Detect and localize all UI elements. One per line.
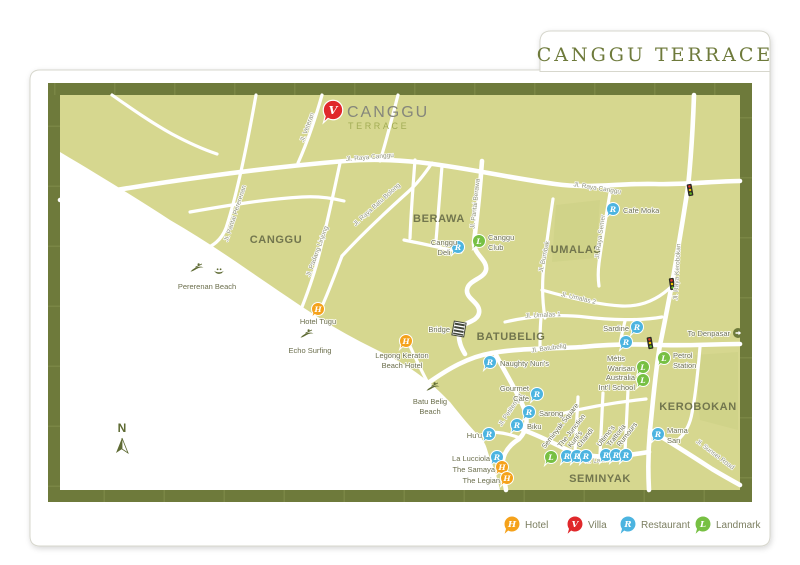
compass-north-label: N	[118, 421, 127, 435]
poi-label-sardine: Sardine	[603, 324, 629, 333]
poi-label-la-lucciola: La Lucciola	[452, 454, 491, 463]
bridge-icon	[452, 321, 466, 337]
poi-label-huu: Hu'u	[467, 431, 482, 440]
legend-label-restaurant: Restaurant	[641, 520, 690, 531]
svg-text:L: L	[547, 453, 553, 462]
poi-label-mama-san-2: San	[667, 436, 680, 445]
svg-text:H: H	[507, 520, 517, 530]
svg-text:H: H	[502, 474, 511, 483]
beach-label-batu-belig-1: Batu Belig	[413, 397, 447, 406]
poi-label-legong-keraton-1: Legong Keraton	[375, 351, 428, 360]
poi-label-australia-school-2: Int'l School	[599, 383, 636, 392]
poi-label-warisan: Warisan	[608, 364, 635, 373]
svg-text:L: L	[639, 363, 645, 372]
svg-text:R: R	[612, 451, 619, 460]
area-label-canggu: CANGGU	[250, 234, 303, 246]
page-title: CANGGU TERRACE	[537, 44, 774, 66]
svg-text:L: L	[660, 354, 666, 363]
bridge-label: Bridge	[428, 325, 450, 334]
poi-label-canggu-deli-2: Deli	[438, 248, 451, 257]
to-denpasar-label: To Denpasar	[687, 329, 730, 338]
area-label-kerobokan: KEROBOKAN	[659, 401, 737, 413]
poi-label-canggu-club-2: Club	[488, 243, 503, 252]
beach-label-echo-surfing: Echo Surfing	[289, 346, 332, 355]
beach-label-batu-belig-2: Beach	[419, 407, 440, 416]
svg-text:V: V	[329, 103, 339, 117]
legend-label-landmark: Landmark	[716, 520, 761, 531]
svg-text:R: R	[563, 452, 570, 461]
svg-text:R: R	[485, 430, 492, 439]
svg-text:R: R	[633, 323, 640, 332]
poi-label-canggu-club-1: Canggu	[488, 233, 514, 242]
svg-text:L: L	[699, 520, 706, 530]
poi-label-canggu-deli-1: Canggu	[431, 238, 457, 247]
poi-label-cafe-moka: Cafe Moka	[623, 206, 660, 215]
svg-text:R: R	[533, 390, 540, 399]
to-denpasar-arrow-icon	[733, 328, 743, 338]
poi-label-hotel-tugu: Hotel Tugu	[300, 317, 336, 326]
area-label-berawa: BERAWA	[413, 213, 465, 225]
svg-text:H: H	[401, 337, 410, 346]
svg-text:R: R	[525, 408, 532, 417]
poi-label-australia-school-1: Australia	[606, 373, 636, 382]
svg-text:R: R	[486, 358, 493, 367]
poi-label-sarong: Sarong	[539, 409, 563, 418]
poi-label-gourmet-cafe-2: Cafe	[513, 394, 529, 403]
area-label-batubelig: BATUBELIG	[477, 331, 546, 343]
poi-label-gourmet-cafe-1: Gourmet	[500, 384, 530, 393]
poi-label-petrol-station-2: Station	[673, 361, 696, 370]
svg-text:L: L	[639, 376, 645, 385]
svg-text:R: R	[623, 520, 631, 530]
canggu-terrace-map-page: CANGGU TERRACE	[0, 0, 800, 565]
svg-text:H: H	[313, 305, 322, 314]
area-label-seminyak: SEMINYAK	[569, 473, 631, 485]
poi-label-biku: Biku	[527, 422, 542, 431]
villa-title-line2: TERRACE	[348, 121, 409, 131]
poi-label-petrol-station-1: Petrol	[673, 351, 693, 360]
beach-label-pererenan: Pererenan Beach	[178, 282, 236, 291]
svg-text:R: R	[493, 453, 500, 462]
svg-text:R: R	[654, 430, 661, 439]
poi-label-the-legian: The Legian	[462, 476, 500, 485]
poi-label-the-samaya: The Samaya	[452, 465, 495, 474]
legend-label-villa: Villa	[588, 520, 607, 531]
villa-title-line1: CANGGU	[347, 104, 429, 121]
svg-text:R: R	[622, 451, 629, 460]
svg-text:R: R	[609, 205, 616, 214]
svg-text:R: R	[602, 451, 609, 460]
poi-label-legong-keraton-2: Beach Hotel	[382, 361, 423, 370]
legend-label-hotel: Hotel	[525, 520, 548, 531]
svg-text:H: H	[497, 463, 506, 472]
svg-text:L: L	[475, 237, 481, 246]
poi-label-mama-san-1: Mama	[667, 426, 689, 435]
poi-label-metis: Métis	[607, 354, 625, 363]
svg-text:R: R	[622, 338, 629, 347]
svg-text:R: R	[582, 452, 589, 461]
poi-label-naughty-nuris: Naughty Nuri's	[500, 359, 549, 368]
svg-text:R: R	[513, 421, 520, 430]
